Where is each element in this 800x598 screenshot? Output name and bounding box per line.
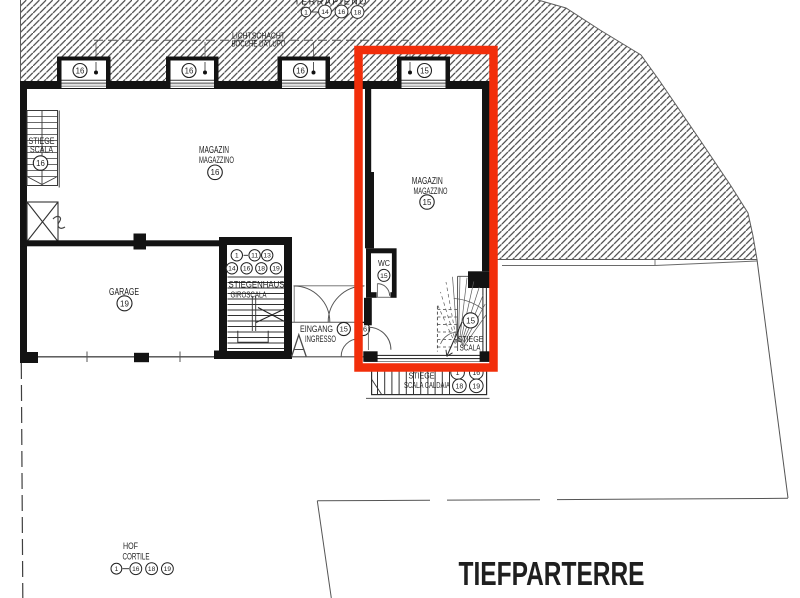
svg-text:16: 16 (36, 159, 45, 168)
svg-text:16: 16 (211, 168, 220, 177)
svg-text:SCALA: SCALA (460, 343, 481, 353)
svg-text:SCALA: SCALA (30, 145, 53, 156)
svg-text:GIROSCALA: GIROSCALA (231, 290, 267, 300)
svg-text:BOCCHE DA LUPO: BOCCHE DA LUPO (232, 40, 286, 49)
svg-text:15: 15 (340, 325, 348, 334)
svg-text:11: 11 (251, 253, 258, 260)
svg-text:CORTILE: CORTILE (123, 552, 150, 562)
svg-text:SCALA CALDAIA: SCALA CALDAIA (404, 381, 450, 390)
svg-text:EINGANG: EINGANG (300, 324, 333, 334)
svg-text:16: 16 (76, 66, 85, 75)
svg-text:18: 18 (258, 266, 266, 273)
svg-text:13: 13 (263, 253, 271, 260)
svg-text:1: 1 (115, 566, 119, 573)
svg-text:18: 18 (148, 566, 156, 573)
svg-text:16: 16 (185, 66, 194, 75)
svg-text:19: 19 (472, 384, 480, 391)
svg-text:19: 19 (120, 299, 129, 308)
svg-text:18: 18 (456, 384, 464, 391)
svg-text:16: 16 (243, 266, 251, 273)
svg-text:WC: WC (378, 259, 390, 268)
svg-text:15: 15 (466, 316, 475, 325)
svg-text:14: 14 (321, 9, 329, 16)
svg-text:14: 14 (228, 266, 236, 273)
svg-text:STIEGE: STIEGE (409, 371, 435, 381)
svg-text:INGRESSO: INGRESSO (305, 334, 336, 344)
svg-text:16: 16 (296, 66, 305, 75)
svg-text:16: 16 (132, 566, 140, 573)
svg-text:1: 1 (235, 253, 239, 260)
svg-text:15: 15 (420, 66, 429, 75)
svg-text:MAGAZZINO: MAGAZZINO (199, 155, 234, 166)
svg-text:19: 19 (164, 566, 172, 573)
svg-text:19: 19 (272, 266, 280, 273)
svg-text:HOF: HOF (123, 541, 138, 551)
svg-text:1: 1 (304, 10, 308, 17)
svg-text:16: 16 (338, 9, 346, 16)
svg-text:TIEFPARTERRE: TIEFPARTERRE (459, 555, 645, 592)
svg-text:15: 15 (380, 273, 388, 280)
svg-text:15: 15 (423, 198, 432, 207)
svg-text:18: 18 (354, 10, 362, 17)
